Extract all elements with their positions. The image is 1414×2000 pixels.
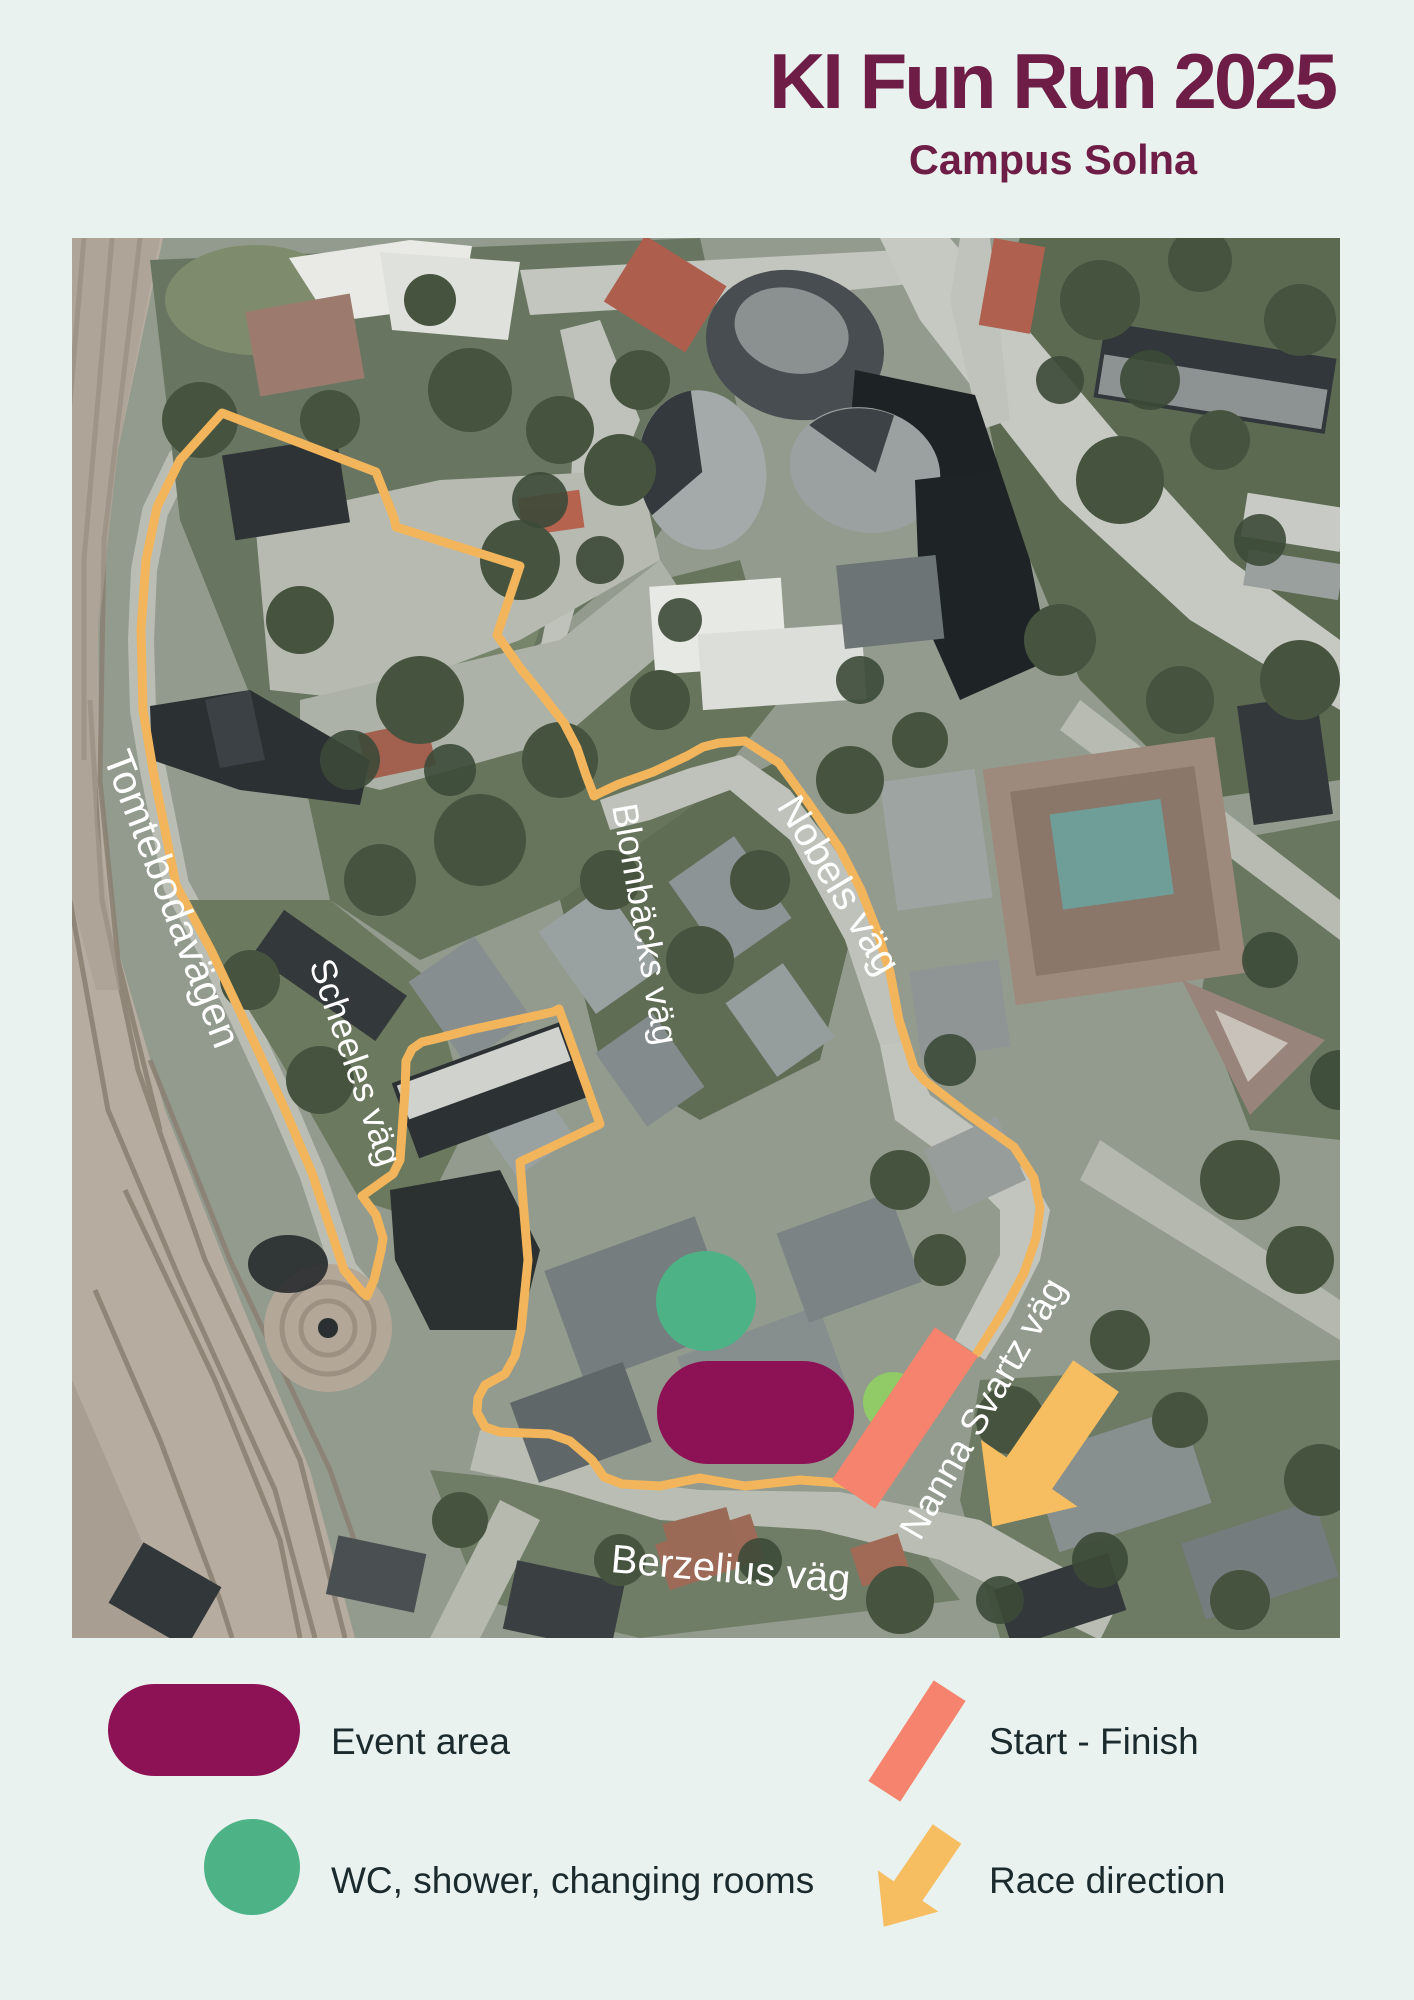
svg-text:WC, shower, changing rooms: WC, shower, changing rooms [331,1860,814,1901]
svg-text:Race direction: Race direction [989,1860,1226,1901]
svg-text:Start - Finish: Start - Finish [989,1721,1199,1762]
svg-text:KI Fun Run 2025: KI Fun Run 2025 [769,37,1337,125]
svg-text:Event area: Event area [331,1721,510,1762]
svg-text:Campus Solna: Campus Solna [909,136,1198,183]
